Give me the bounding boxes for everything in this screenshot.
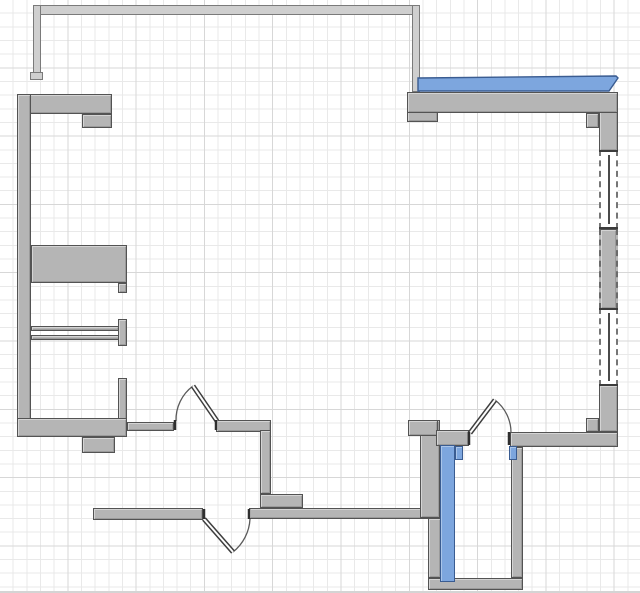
balcony-wall-top[interactable] (33, 5, 420, 15)
door-leaf-fill (470, 400, 495, 433)
balcony-wall-left-foot[interactable] (30, 72, 43, 80)
pilaster-bottom-right[interactable] (586, 418, 599, 432)
wall-top-right[interactable] (407, 92, 618, 113)
wall-wc-right[interactable] (511, 447, 523, 578)
wall-bottom-right[interactable] (510, 432, 618, 447)
partition-upper[interactable] (31, 326, 119, 331)
wall-bottom-left-tab[interactable] (82, 437, 115, 453)
window-glass-line (608, 313, 610, 381)
wall-top-left[interactable] (17, 94, 112, 114)
wall-wc-pilaster[interactable] (408, 420, 438, 436)
wall-left[interactable] (17, 94, 31, 437)
floor-plan-canvas[interactable] (0, 0, 640, 593)
wall-right-lower[interactable] (599, 385, 618, 432)
wall-right-upper[interactable] (599, 110, 618, 151)
door-leaf-fill (193, 386, 217, 421)
window-sill-top (599, 150, 618, 152)
window-sill-bottom (599, 384, 618, 386)
window-upper[interactable] (599, 150, 618, 229)
selected-wall-wc-left[interactable] (440, 445, 455, 582)
window-sill-top (599, 308, 618, 310)
partition-lower[interactable] (31, 335, 120, 340)
wall-bottom-west[interactable] (93, 508, 203, 520)
floor-plan (0, 0, 640, 593)
partition-end-cap[interactable] (118, 319, 127, 346)
wall-mid-thick-stub[interactable] (118, 283, 127, 293)
pilaster-top-right-east[interactable] (586, 113, 599, 128)
door-swing-arc (176, 386, 193, 421)
door-bottom[interactable] (193, 501, 258, 561)
wall-stub-vertical[interactable] (118, 378, 127, 420)
door-swing-arc (233, 519, 250, 552)
wall-bottom-mid[interactable] (249, 508, 430, 519)
window-sill-bottom (599, 227, 618, 229)
wall-interior-vertical[interactable] (260, 430, 271, 494)
door-wc[interactable] (456, 386, 520, 450)
door-swing-arc (495, 400, 511, 433)
wall-top-left-stub[interactable] (82, 114, 112, 128)
balcony-wall-left[interactable] (33, 5, 41, 79)
window-lower[interactable] (599, 308, 618, 386)
wall-mid-thick[interactable] (31, 245, 127, 283)
window-glass-line (608, 155, 610, 224)
door-hall[interactable] (161, 374, 227, 436)
window-pier[interactable] (599, 229, 618, 309)
door-leaf-fill (204, 519, 233, 552)
wall-bottom-left[interactable] (17, 418, 127, 437)
selected-wall-top-right-shape (418, 76, 618, 91)
wall-interior-step[interactable] (260, 494, 303, 508)
selected-wall-top-right[interactable] (416, 74, 620, 94)
